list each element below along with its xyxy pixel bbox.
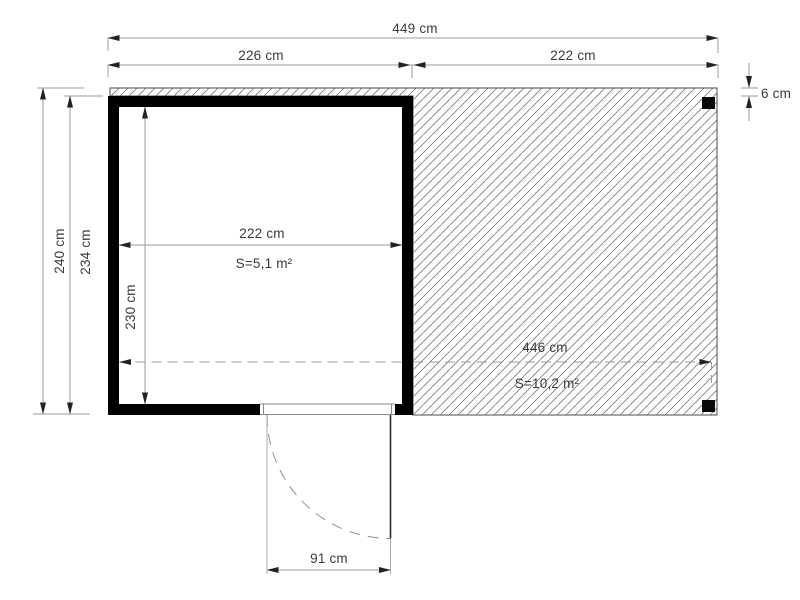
door-opening-gap bbox=[260, 404, 395, 416]
floor-plan-canvas: 449 cm 226 cm 222 cm 6 cm 240 cm 234 cm … bbox=[0, 0, 800, 600]
dim-label-cabin-width: 226 cm bbox=[216, 48, 306, 64]
corner-post-bottom bbox=[702, 400, 715, 412]
dim-label-canopy-length: 446 cm bbox=[500, 340, 590, 356]
dim-cabin-canopy-split bbox=[108, 65, 718, 78]
label-canopy-area: S=10,2 m² bbox=[502, 376, 592, 392]
door-swing-arc bbox=[267, 415, 391, 539]
dim-roof-overhang bbox=[741, 63, 758, 121]
dim-label-cabin-depth: 234 cm bbox=[78, 212, 94, 292]
dim-label-interior-width: 222 cm bbox=[217, 226, 307, 242]
dim-label-canopy-width: 222 cm bbox=[528, 48, 618, 64]
dim-label-interior-depth: 230 cm bbox=[123, 267, 139, 347]
floor-plan-drawing bbox=[0, 0, 800, 600]
door-opening bbox=[260, 404, 395, 416]
dim-label-roof-overhang: 6 cm bbox=[761, 86, 800, 102]
dim-overall-width bbox=[108, 38, 718, 53]
label-interior-area: S=5,1 m² bbox=[219, 256, 309, 272]
dim-label-overall-depth: 240 cm bbox=[52, 211, 68, 291]
dim-label-door-width: 91 cm bbox=[284, 551, 374, 567]
corner-post-top bbox=[702, 97, 715, 109]
dim-label-overall-width: 449 cm bbox=[370, 21, 460, 37]
